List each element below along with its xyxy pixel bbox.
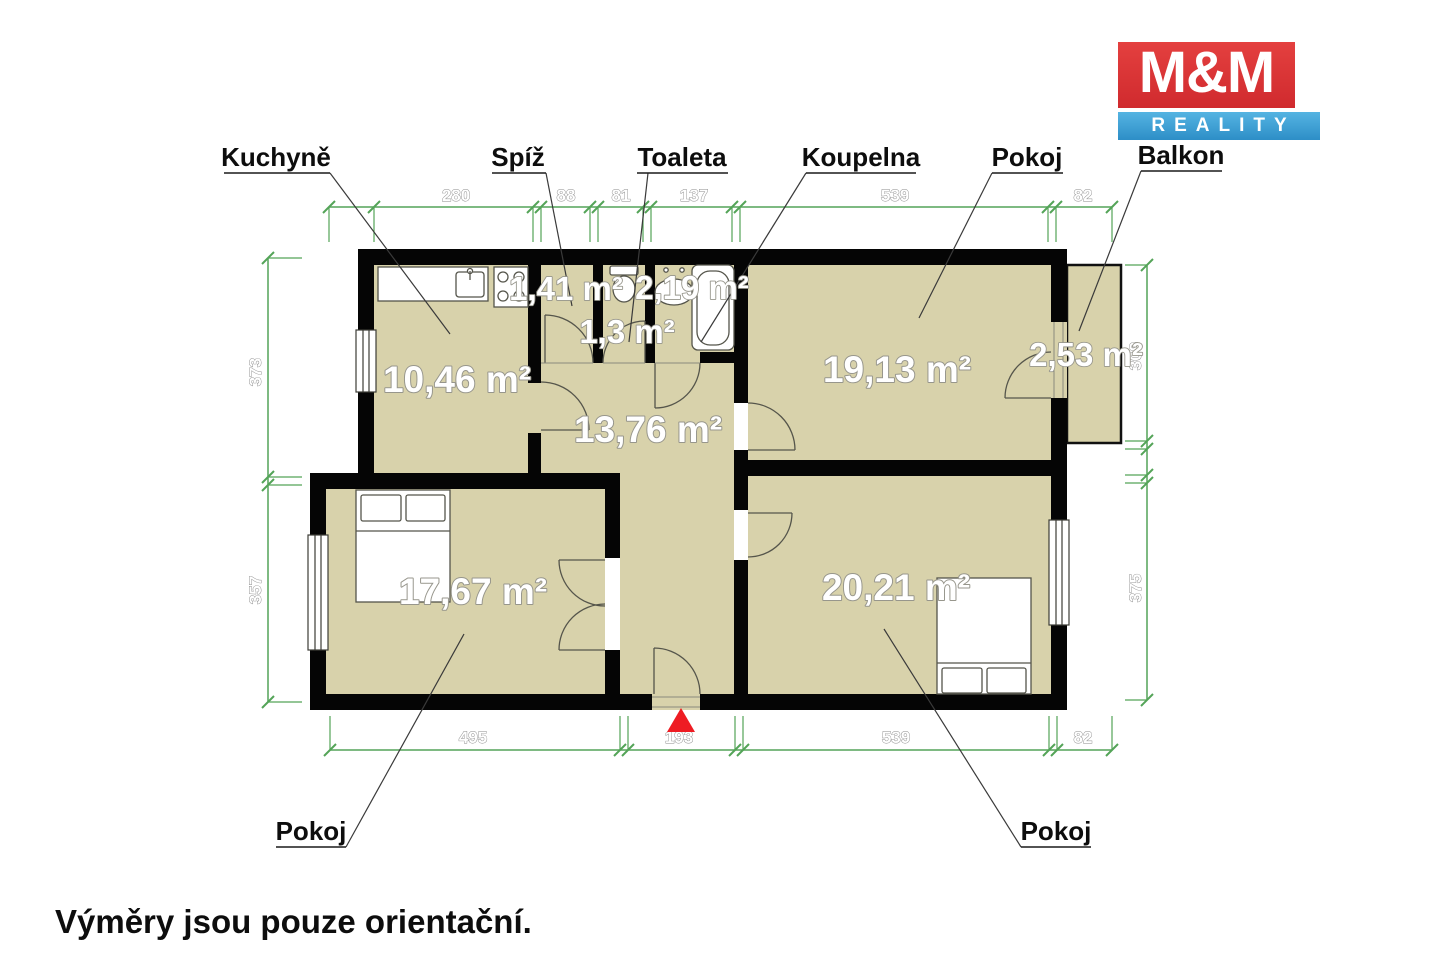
dim-top-81: 81 (612, 186, 631, 205)
dim-bottom-539: 539 (882, 728, 910, 747)
label-room-bottom-right: Pokoj (1021, 816, 1092, 846)
wall-top (358, 249, 1067, 265)
label-bathroom: Koupelna (802, 142, 921, 172)
window-room-right (1049, 520, 1069, 625)
wall-central-c (734, 560, 748, 694)
area-bathroom: 2,19 m² (635, 269, 749, 306)
floor-corridor (620, 473, 734, 694)
label-balcony: Balkon (1138, 140, 1225, 170)
dim-bottom-495: 495 (459, 728, 487, 747)
dim-ext-bottom (330, 716, 1112, 750)
dim-left-373: 373 (246, 358, 265, 386)
stove-burner (498, 272, 508, 282)
wall-right-2 (1051, 398, 1067, 520)
wall-bath-bottom (700, 352, 734, 363)
area-pantry: 1,41 m² (509, 270, 623, 307)
window-kitchen (356, 330, 376, 392)
bed-right-pillow (942, 668, 982, 693)
wall-roomleft-a (605, 473, 620, 558)
dim-bottom-82: 82 (1074, 728, 1093, 747)
wall-mid-right (748, 460, 1067, 476)
area-kitchen: 10,46 m² (383, 359, 531, 400)
area-balcony: 2,53 m² (1029, 336, 1143, 373)
wall-bottom-right (700, 694, 1067, 710)
bed-left-pillow (406, 495, 445, 521)
dim-right-375: 375 (1126, 574, 1145, 602)
dim-ext-top (329, 207, 1112, 242)
wall-mid-left (310, 473, 620, 489)
disclaimer-text: Výměry jsou pouze orientační. (55, 903, 532, 941)
wall-kitchen-b (528, 433, 541, 473)
dim-top-82: 82 (1074, 186, 1093, 205)
area-hall: 13,76 m² (574, 409, 722, 450)
label-room-bottom-left: Pokoj (276, 816, 347, 846)
bed-left-pillow (361, 495, 401, 521)
entrance-marker (667, 708, 695, 732)
area-room-right-bottom: 20,21 m² (822, 567, 970, 608)
wall-bottom-left (310, 694, 652, 710)
dim-top-88: 88 (557, 186, 576, 205)
wall-central-b (734, 450, 748, 510)
label-pantry: Spíž (491, 142, 544, 172)
floorplan-page: 280 88 81 137 539 82 495 193 539 82 373 … (0, 0, 1440, 960)
dim-ext-right (1125, 265, 1147, 700)
dim-top-280: 280 (442, 186, 470, 205)
dim-top-137: 137 (680, 186, 708, 205)
label-toilet: Toaleta (637, 142, 727, 172)
stove-burner (498, 291, 508, 301)
logo-mm: M&M (1118, 42, 1295, 108)
window-room-left (308, 535, 328, 650)
wall-roomleft-b (605, 650, 620, 694)
label-kitchen: Kuchyně (221, 142, 331, 172)
bed-right-pillow (987, 668, 1026, 693)
floor-entrance-gap (652, 694, 700, 710)
dim-top-539: 539 (881, 186, 909, 205)
wall-right-1 (1051, 265, 1067, 322)
mm-reality-logo: M&M REALITY (1118, 42, 1320, 140)
label-room-top: Pokoj (992, 142, 1063, 172)
area-toilet: 1,3 m² (579, 313, 674, 350)
wall-right-3 (1051, 625, 1067, 694)
area-room-left: 17,67 m² (399, 571, 547, 612)
dim-left-357: 357 (246, 576, 265, 604)
floorplan-drawing: 280 88 81 137 539 82 495 193 539 82 373 … (0, 0, 1440, 960)
logo-reality: REALITY (1118, 112, 1320, 140)
area-room-right-top: 19,13 m² (823, 349, 971, 390)
